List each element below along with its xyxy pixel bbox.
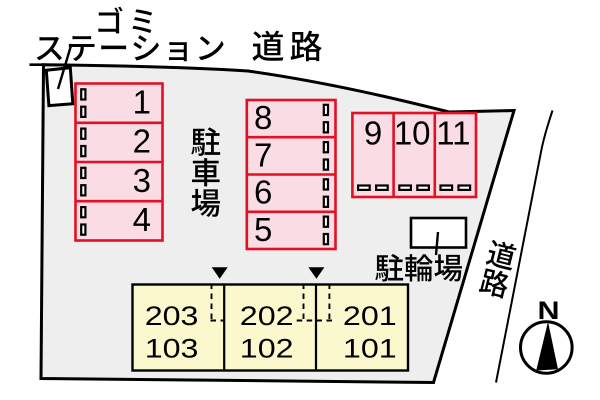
svg-text:N: N: [537, 297, 559, 325]
svg-text:203: 203: [145, 302, 199, 332]
svg-text:5: 5: [254, 211, 272, 248]
svg-text:10: 10: [394, 115, 431, 152]
svg-text:201: 201: [343, 302, 397, 332]
svg-text:103: 103: [145, 334, 199, 364]
svg-text:9: 9: [364, 115, 382, 152]
svg-text:102: 102: [240, 334, 294, 364]
svg-text:202: 202: [240, 302, 294, 332]
svg-text:11: 11: [436, 115, 470, 152]
svg-text:8: 8: [254, 99, 272, 136]
svg-text:2: 2: [133, 123, 151, 160]
svg-text:101: 101: [343, 334, 397, 364]
svg-text:1: 1: [133, 83, 151, 120]
svg-text:6: 6: [254, 174, 272, 211]
svg-text:7: 7: [254, 136, 272, 173]
svg-text:3: 3: [133, 162, 151, 199]
svg-text:4: 4: [133, 201, 151, 238]
